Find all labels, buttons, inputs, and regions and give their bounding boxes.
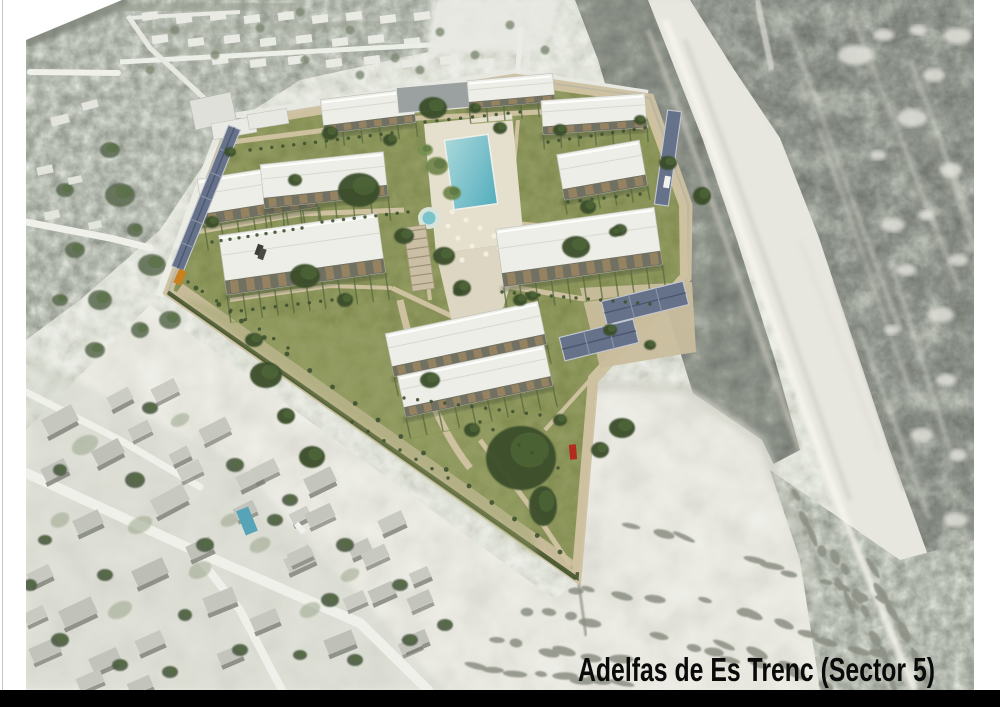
- svg-text:Adelfas de Es Trenc (Sector 5): Adelfas de Es Trenc (Sector 5): [578, 651, 935, 688]
